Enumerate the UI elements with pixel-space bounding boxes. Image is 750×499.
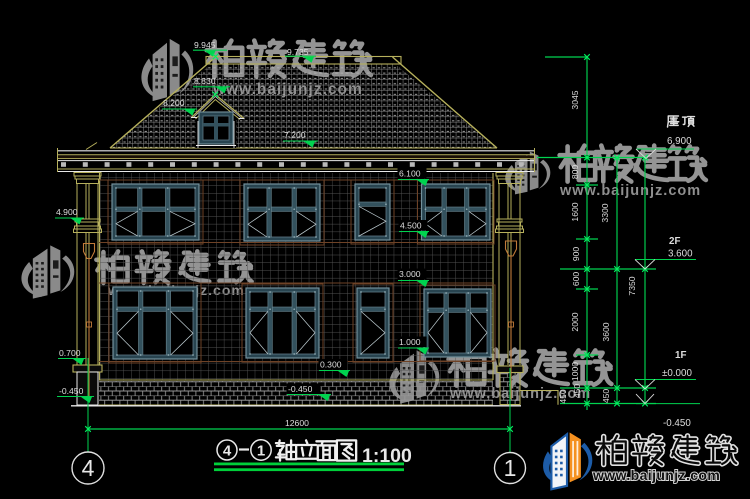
- svg-text:3045: 3045: [570, 90, 580, 109]
- svg-text:4.500: 4.500: [400, 221, 422, 231]
- svg-text:-0.450: -0.450: [288, 384, 313, 394]
- svg-text:3.000: 3.000: [399, 269, 421, 279]
- svg-text:800: 800: [570, 165, 580, 180]
- svg-text:0.300: 0.300: [320, 360, 342, 370]
- svg-text:1600: 1600: [570, 202, 580, 221]
- svg-text:900: 900: [571, 247, 581, 262]
- svg-text:7350: 7350: [627, 276, 637, 295]
- svg-text:1: 1: [504, 455, 517, 481]
- svg-text:450: 450: [572, 384, 582, 399]
- svg-text:±0.000: ±0.000: [662, 368, 692, 379]
- svg-text:450: 450: [601, 389, 611, 404]
- svg-text:6.900: 6.900: [667, 136, 692, 147]
- svg-text:3600: 3600: [601, 322, 611, 341]
- svg-text:600: 600: [571, 272, 581, 287]
- svg-text:12600: 12600: [285, 418, 309, 428]
- svg-text:4.900: 4.900: [56, 207, 78, 217]
- svg-text:4: 4: [82, 455, 95, 481]
- svg-text:-0.450: -0.450: [663, 418, 691, 429]
- svg-text:9.945: 9.945: [194, 40, 216, 50]
- svg-text:1: 1: [257, 443, 265, 460]
- svg-text:1F: 1F: [675, 350, 686, 361]
- svg-text:8.200: 8.200: [163, 98, 185, 108]
- svg-text:0.700: 0.700: [59, 348, 81, 358]
- svg-text:7.200: 7.200: [284, 130, 306, 140]
- svg-text:8.830: 8.830: [194, 76, 216, 86]
- svg-text:3300: 3300: [600, 203, 610, 222]
- svg-text:9.735: 9.735: [287, 47, 309, 57]
- svg-text:2000: 2000: [570, 312, 580, 331]
- svg-text:1.000: 1.000: [399, 337, 421, 347]
- svg-text:2F: 2F: [669, 236, 680, 247]
- svg-text:1000: 1000: [570, 362, 580, 381]
- svg-text:www.baijunjz.com: www.baijunjz.com: [592, 467, 720, 483]
- svg-text:3.600: 3.600: [668, 249, 693, 260]
- svg-text:450: 450: [558, 389, 568, 404]
- svg-text:6.100: 6.100: [399, 169, 421, 179]
- svg-text:-0.450: -0.450: [59, 386, 84, 396]
- svg-text:4: 4: [223, 443, 232, 460]
